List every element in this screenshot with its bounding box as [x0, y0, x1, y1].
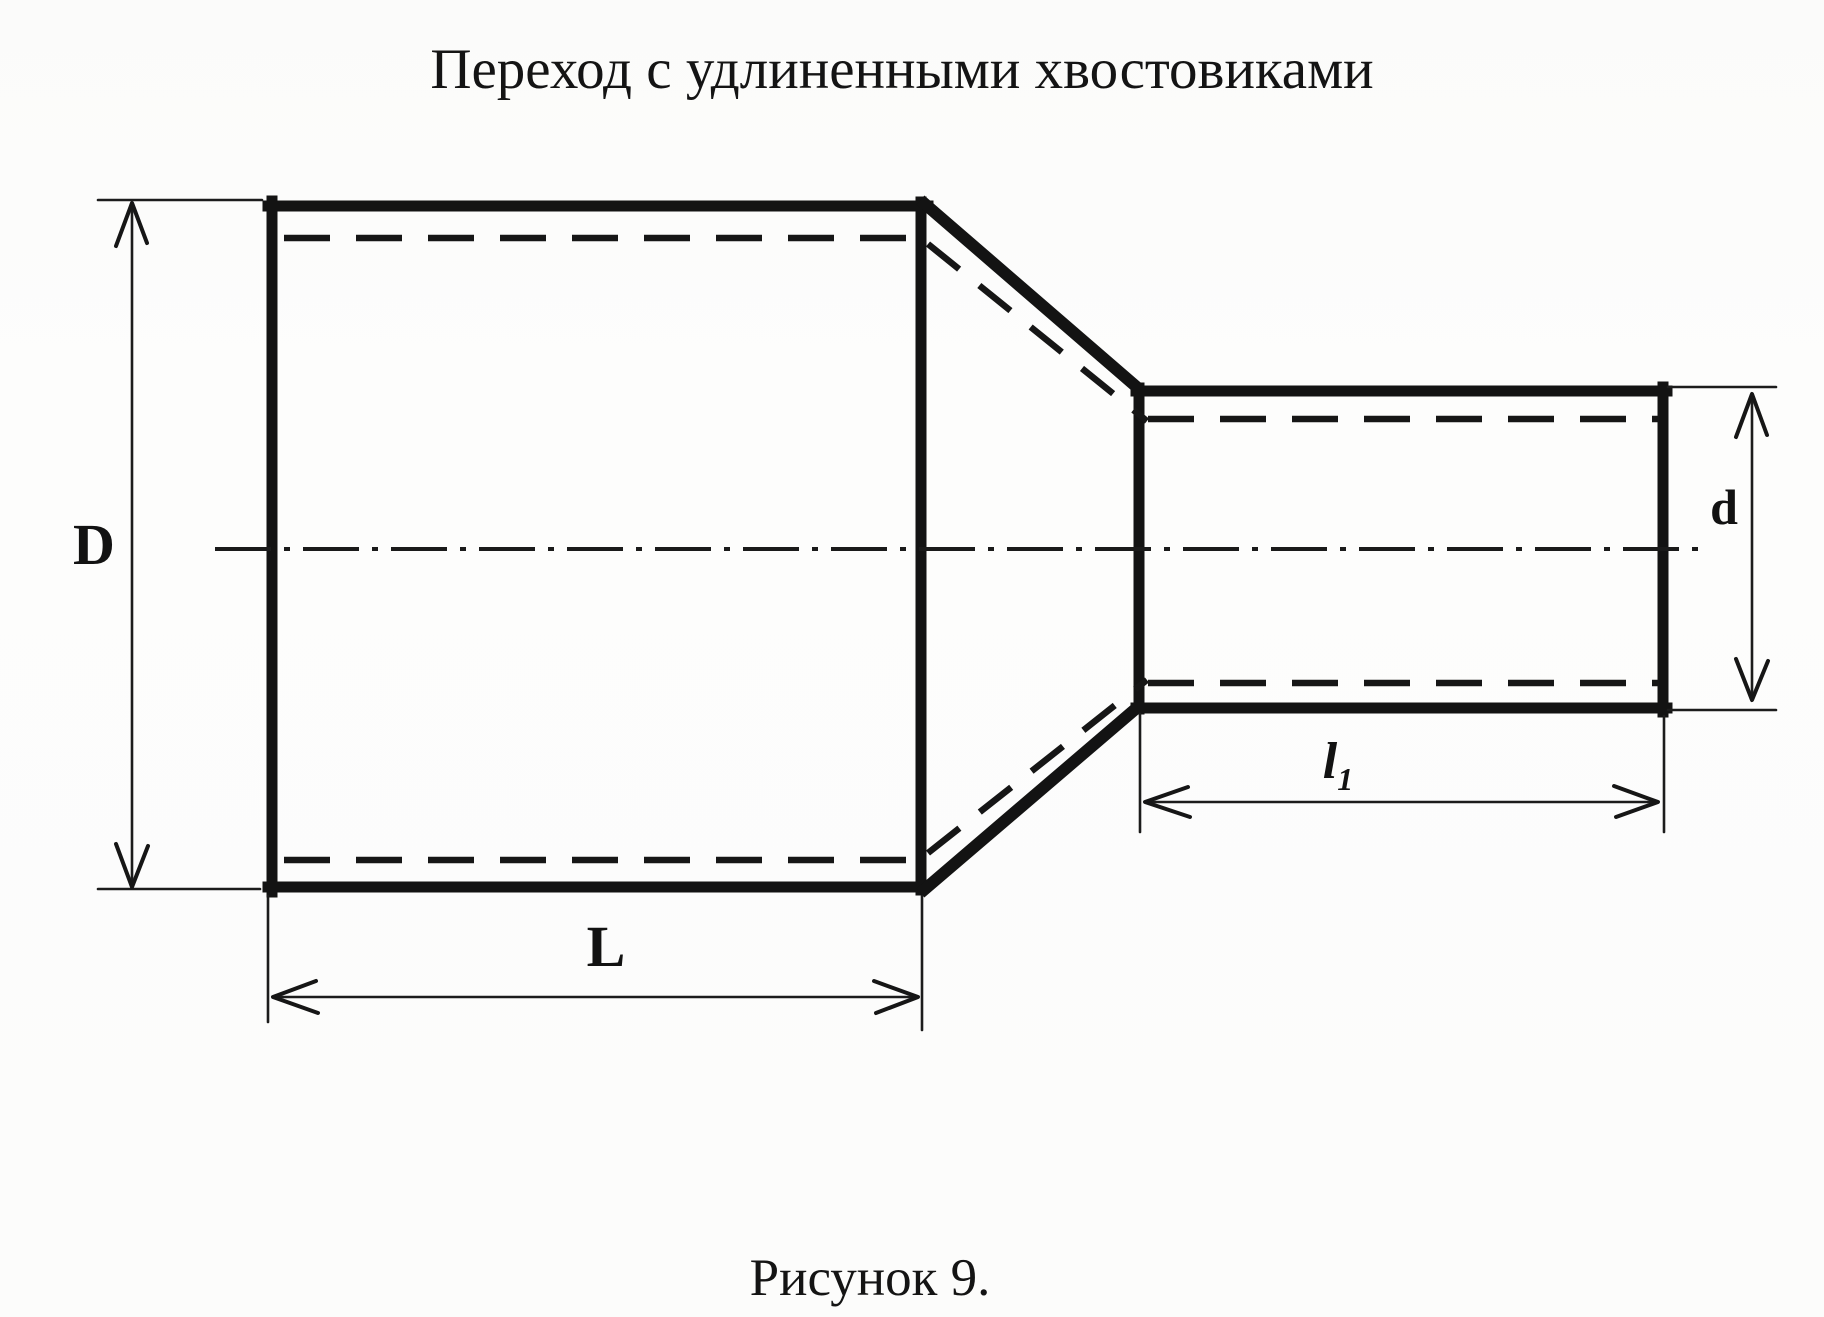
cone-inner-bottom-dashed [928, 680, 1147, 853]
cone-top-slant-edge [925, 204, 1139, 389]
dim-l1-label-subscript: 1 [1337, 761, 1353, 797]
dimension-large-diameter: D [73, 200, 262, 889]
dim-l1-label-base: l [1323, 733, 1338, 790]
cone-inner-top-dashed [928, 244, 1147, 421]
dimension-small-diameter: d [1668, 387, 1776, 710]
cone-bottom-slant-edge [925, 706, 1139, 889]
dim-d-label: d [1710, 479, 1738, 535]
reducer-technical-drawing: D d L l1 [0, 0, 1824, 1317]
reducer-body-outline [268, 201, 1667, 892]
dimension-small-length: l1 [1140, 714, 1664, 832]
figure-caption: Рисунок 9. [650, 1248, 1090, 1308]
dim-l1-label: l1 [1323, 733, 1353, 797]
dimension-large-length: L [268, 896, 922, 1030]
dim-L-label: L [587, 914, 626, 979]
dim-D-label: D [73, 512, 115, 577]
